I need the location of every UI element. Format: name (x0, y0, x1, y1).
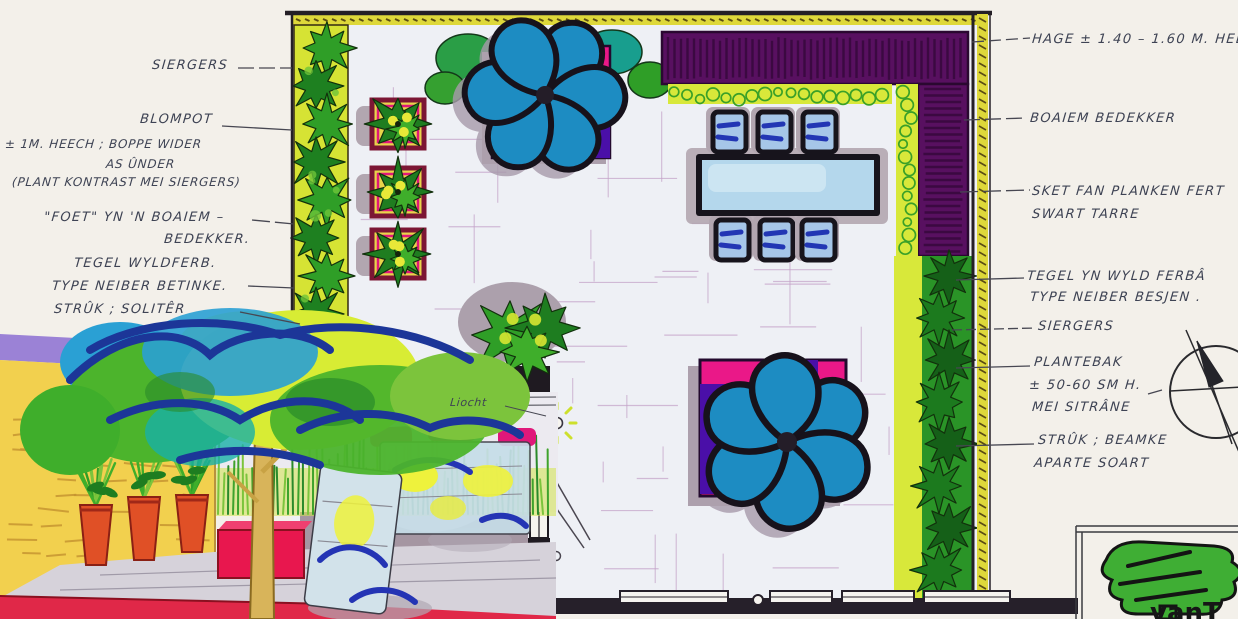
label-blompot-l2: ± 1M. HEECH ; BOPPE WIDER (4, 137, 202, 151)
label-foet-boaiem: "FOET" YN 'N BOAIEM – (43, 210, 225, 225)
label-foet-boaiem-l2: BEDEKKER. (163, 232, 251, 247)
label-struk-beamke: STRÛK ; BEAMKE (1037, 433, 1168, 448)
label-sket-l2: SWART TARRE (1031, 207, 1140, 222)
bottom-door-pivot (753, 595, 763, 605)
perspective-sketch (0, 308, 558, 619)
label-plantebak: PLANTEBAK (1033, 355, 1123, 370)
logo-text: vanT (1150, 600, 1221, 619)
label-sket: SKET FAN PLANKEN FERT (1031, 184, 1225, 199)
label-siergers-right: SIERGERS (1037, 319, 1114, 334)
flower-pots (356, 98, 433, 287)
label-blompot-l4: (PLANT KONTRAST MEI SIERGERS) (11, 175, 241, 189)
right-hedge (894, 250, 979, 598)
label-tegel-left: TEGEL WYLDFERB. (73, 256, 217, 271)
tree-trunk (250, 432, 274, 619)
label-blompot-l3: AS ÛNDER (105, 157, 175, 171)
label-tegel-left-l2: TYPE NEIBER BETINKE. (51, 279, 228, 294)
label-blompot: BLOMPOT (139, 112, 213, 127)
bottom-boundary (550, 591, 1078, 614)
label-boaiem-bedekker: BOAIEM BEDEKKER (1029, 111, 1176, 126)
label-tegel-wyld-l2: TYPE NEIBER BESJEN . (1029, 290, 1202, 305)
label-struk-beamke-l2: APARTE SOART (1033, 456, 1150, 471)
label-hage: HAGE ± 1.40 – 1.60 M. HEEC (1031, 32, 1238, 47)
logo-text-clip: vanT (1150, 600, 1238, 619)
label-plantebak-l3: MEI SITRÂNE (1031, 400, 1131, 415)
label-tegel-wyld: TEGEL YN WYLD FERBÂ (1026, 269, 1206, 284)
garden-plan-sheet: SIERGERS BLOMPOT ± 1M. HEECH ; BOPPE WID… (0, 0, 1238, 619)
label-plantebak-l2: ± 50-60 SM H. (1028, 378, 1142, 393)
label-siergers-left: SIERGERS (151, 58, 228, 73)
label-liocht: Liocht (449, 396, 487, 409)
label-struk-soliter: STRÛK ; SOLITÊR (53, 302, 186, 317)
